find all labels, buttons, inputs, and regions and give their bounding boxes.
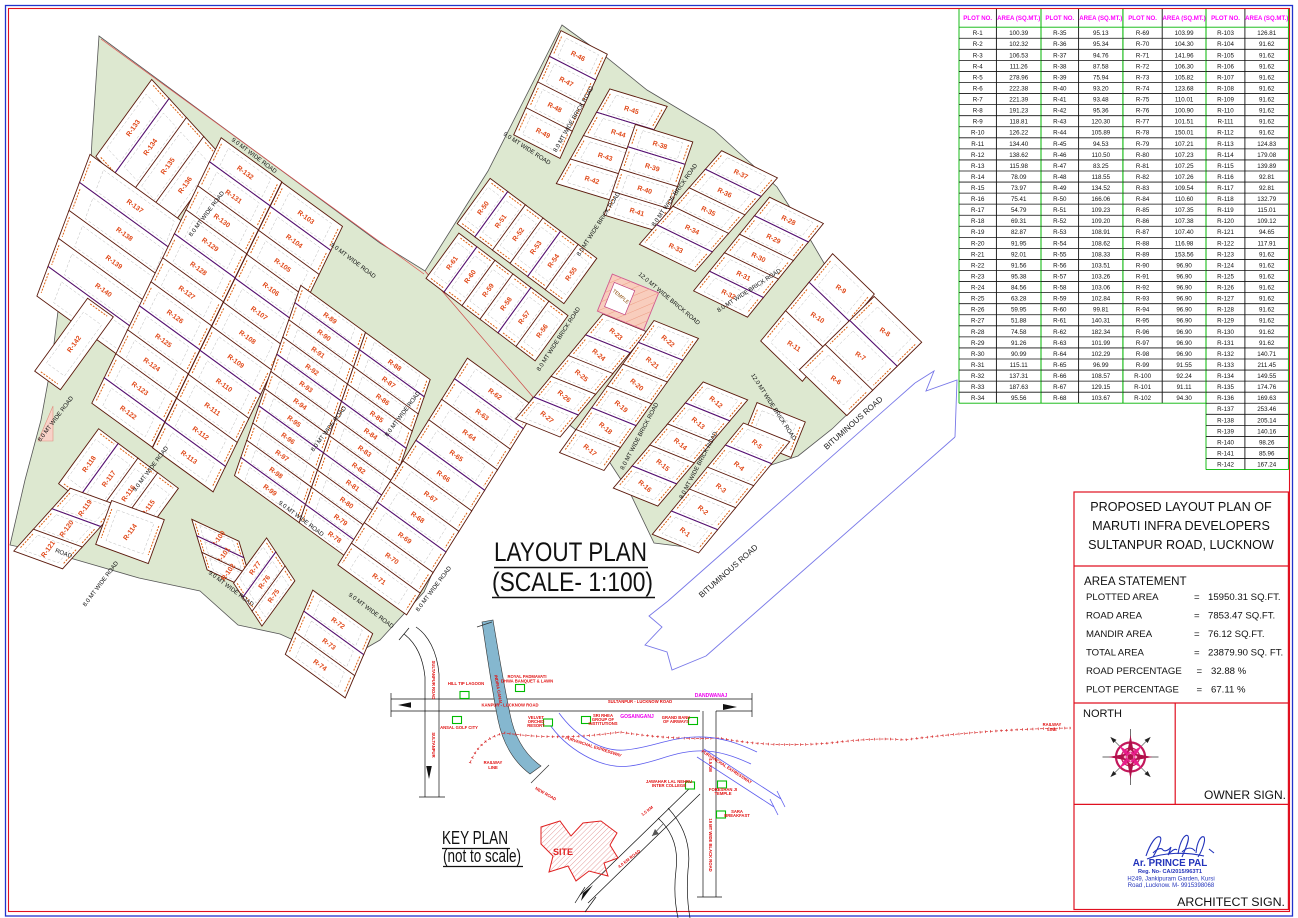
svg-text:103.26: 103.26 [1091,273,1110,280]
svg-text:R-85: R-85 [1136,207,1150,214]
svg-text:91.62: 91.62 [1259,329,1275,336]
svg-text:R-125: R-125 [1217,273,1234,280]
svg-text:82.87: 82.87 [1011,229,1027,236]
svg-text:R-134: R-134 [1217,373,1234,380]
svg-text:=: = [1197,666,1203,677]
svg-text:96.90: 96.90 [1176,273,1192,280]
svg-text:=: = [1197,685,1203,696]
svg-text:87.58: 87.58 [1093,63,1109,70]
svg-text:166.06: 166.06 [1091,196,1110,203]
svg-text:98.26: 98.26 [1259,439,1275,446]
svg-text:R-102: R-102 [1134,395,1151,402]
svg-text:7853.47 SQ.FT.: 7853.47 SQ.FT. [1208,611,1275,622]
svg-text:107.38: 107.38 [1175,218,1194,225]
svg-text:DANDWANAJ: DANDWANAJ [695,693,728,699]
svg-text:140.31: 140.31 [1091,318,1110,325]
svg-text:PLOT NO.: PLOT NO. [1045,15,1074,22]
svg-text:111.26: 111.26 [1010,63,1029,70]
svg-text:H249, Jankipuram Garden, Kursi: H249, Jankipuram Garden, Kursi [1127,876,1214,882]
svg-text:R-113: R-113 [1217,141,1234,148]
svg-text:R-15: R-15 [971,185,985,192]
svg-text:15950.31 SQ.FT.: 15950.31 SQ.FT. [1208,592,1281,603]
svg-text:R-39: R-39 [1053,74,1067,81]
svg-text:OWNER SIGN.: OWNER SIGN. [1204,788,1286,802]
svg-text:R-116: R-116 [1217,174,1234,181]
svg-text:R-35: R-35 [1053,30,1067,37]
svg-text:BREAKFAST: BREAKFAST [724,813,750,818]
svg-text:R-99: R-99 [1136,362,1150,369]
svg-text:91.62: 91.62 [1259,307,1275,314]
svg-text:R-98: R-98 [1136,351,1150,358]
svg-text:95.34: 95.34 [1093,41,1109,48]
svg-text:96.90: 96.90 [1176,318,1192,325]
svg-text:R-19: R-19 [971,229,985,236]
svg-text:R-122: R-122 [1217,240,1234,247]
svg-text:R-12: R-12 [971,152,985,159]
svg-text:92.81: 92.81 [1259,174,1275,181]
svg-text:278.96: 278.96 [1009,74,1028,81]
svg-text:110.60: 110.60 [1175,196,1194,203]
svg-text:TEMPLE: TEMPLE [715,791,732,796]
svg-text:R-140: R-140 [1217,439,1234,446]
svg-text:221.39: 221.39 [1009,97,1028,104]
svg-text:R-120: R-120 [1217,218,1234,225]
svg-text:78.09: 78.09 [1011,174,1027,181]
svg-text:R-108: R-108 [1217,85,1234,92]
svg-text:91.62: 91.62 [1259,262,1275,269]
svg-text:99.81: 99.81 [1093,307,1109,314]
svg-text:R-72: R-72 [1136,63,1150,70]
svg-text:R-54: R-54 [1053,240,1067,247]
svg-text:R-14: R-14 [971,174,985,181]
svg-text:SULTANPUR ROAD: SULTANPUR ROAD [431,661,436,700]
svg-text:132.79: 132.79 [1257,196,1276,203]
svg-text:PROPOSED LAYOUT PLAN OF: PROPOSED LAYOUT PLAN OF [1090,500,1272,514]
svg-text:R-100: R-100 [1134,373,1151,380]
svg-text:R-96: R-96 [1136,329,1150,336]
svg-text:253.46: 253.46 [1257,406,1276,413]
svg-text:R-42: R-42 [1053,108,1067,115]
svg-text:R-105: R-105 [1217,52,1234,59]
svg-text:32.88 %: 32.88 % [1211,666,1247,677]
svg-text:107.23: 107.23 [1175,152,1194,159]
svg-text:109.54: 109.54 [1175,185,1194,192]
svg-text:ROAD AREA: ROAD AREA [1086,611,1143,622]
svg-text:101.99: 101.99 [1091,340,1110,347]
svg-text:179.08: 179.08 [1257,152,1276,159]
svg-text:R-56: R-56 [1053,262,1067,269]
svg-text:141.96: 141.96 [1175,52,1194,59]
svg-text:(SCALE- 1:100): (SCALE- 1:100) [492,567,653,597]
svg-text:=: = [1194,629,1200,640]
svg-text:R-93: R-93 [1136,296,1150,303]
svg-text:109.20: 109.20 [1091,218,1110,225]
svg-text:R-65: R-65 [1053,362,1067,369]
svg-text:R-127: R-127 [1217,296,1234,303]
svg-text:R-137: R-137 [1217,406,1234,413]
svg-text:104.30: 104.30 [1175,41,1194,48]
svg-text:91.62: 91.62 [1259,273,1275,280]
svg-text:R-70: R-70 [1136,41,1150,48]
svg-text:91.62: 91.62 [1259,340,1275,347]
svg-text:91.62: 91.62 [1259,108,1275,115]
svg-text:R-16: R-16 [971,196,985,203]
svg-text:211.45: 211.45 [1257,362,1276,369]
svg-text:153.56: 153.56 [1175,251,1194,258]
svg-text:R-45: R-45 [1053,141,1067,148]
svg-text:149.55: 149.55 [1257,373,1276,380]
svg-text:R-78: R-78 [1136,130,1150,137]
svg-text:R-107: R-107 [1217,74,1234,81]
svg-text:R-33: R-33 [971,384,985,391]
svg-text:69.31: 69.31 [1011,218,1027,225]
svg-text:103.51: 103.51 [1091,262,1110,269]
svg-text:R-13: R-13 [971,163,985,170]
svg-text:115.98: 115.98 [1009,163,1028,170]
svg-text:139.89: 139.89 [1257,163,1276,170]
svg-text:R-74: R-74 [1136,85,1150,92]
svg-text:116.98: 116.98 [1175,240,1194,247]
svg-text:SITE: SITE [553,847,573,857]
svg-text:R-38: R-38 [1053,63,1067,70]
svg-text:R-79: R-79 [1136,141,1150,148]
svg-text:54.79: 54.79 [1011,207,1027,214]
svg-text:INTER COLLEGE: INTER COLLEGE [652,783,686,788]
svg-text:MANDIR AREA: MANDIR AREA [1086,629,1153,640]
svg-text:R-17: R-17 [971,207,985,214]
svg-text:R-128: R-128 [1217,307,1234,314]
svg-text:174.76: 174.76 [1257,384,1276,391]
svg-text:MARUTI INFRA DEVELOPERS: MARUTI INFRA DEVELOPERS [1092,519,1270,533]
svg-text:137.31: 137.31 [1009,373,1028,380]
svg-text:R-2: R-2 [973,41,984,48]
svg-text:R-22: R-22 [971,262,985,269]
svg-text:HILL TIP LAGOON: HILL TIP LAGOON [448,681,484,686]
svg-text:103.06: 103.06 [1091,285,1110,292]
svg-text:R-7: R-7 [973,97,984,104]
svg-text:91.62: 91.62 [1259,130,1275,137]
svg-text:85.96: 85.96 [1259,450,1275,457]
svg-text:R-6: R-6 [973,85,984,92]
svg-text:4.5 KM: 4.5 KM [708,758,713,772]
svg-text:R-59: R-59 [1053,296,1067,303]
svg-text:RESORT: RESORT [527,723,545,728]
svg-text:R-46: R-46 [1053,152,1067,159]
svg-text:91.11: 91.11 [1177,384,1193,391]
svg-text:AREA (SQ.MT.): AREA (SQ.MT.) [1245,15,1288,22]
svg-text:138.62: 138.62 [1009,152,1028,159]
svg-text:222.38: 222.38 [1009,85,1028,92]
svg-text:91.62: 91.62 [1259,74,1275,81]
svg-text:109.12: 109.12 [1257,218,1276,225]
svg-text:191.23: 191.23 [1009,108,1028,115]
svg-text:102.84: 102.84 [1091,296,1110,303]
svg-text:R-31: R-31 [971,362,985,369]
svg-text:110.01: 110.01 [1175,97,1194,104]
svg-text:R-9: R-9 [973,119,984,126]
svg-text:R-91: R-91 [1136,273,1150,280]
svg-text:R-27: R-27 [971,318,985,325]
svg-text:R-88: R-88 [1136,240,1150,247]
svg-text:103.99: 103.99 [1175,30,1194,37]
svg-text:107.40: 107.40 [1175,229,1194,236]
svg-text:R-5: R-5 [973,74,984,81]
svg-text:AREA (SQ.MT.): AREA (SQ.MT.) [1163,15,1206,22]
svg-text:R-18: R-18 [971,218,985,225]
svg-text:91.62: 91.62 [1259,251,1275,258]
svg-text:91.62: 91.62 [1259,285,1275,292]
svg-text:92.01: 92.01 [1011,251,1027,258]
svg-text:R-63: R-63 [1053,340,1067,347]
svg-text:R-84: R-84 [1136,196,1150,203]
svg-text:PLOT PERCENTAGE: PLOT PERCENTAGE [1086,685,1179,696]
svg-text:R-34: R-34 [971,395,985,402]
svg-text:R-51: R-51 [1053,207,1067,214]
svg-text:R-11: R-11 [971,141,985,148]
svg-text:R-3: R-3 [973,52,984,59]
svg-text:103.67: 103.67 [1091,395,1110,402]
svg-text:R-130: R-130 [1217,329,1234,336]
svg-text:SULTANPUR: SULTANPUR [431,732,436,757]
svg-text:R-87: R-87 [1136,229,1150,236]
svg-text:R-86: R-86 [1136,218,1150,225]
svg-text:R-1: R-1 [973,30,984,37]
svg-text:R-106: R-106 [1217,63,1234,70]
svg-text:NORTH: NORTH [1083,708,1122,720]
svg-text:R-30: R-30 [971,351,985,358]
svg-text:R-83: R-83 [1136,185,1150,192]
svg-text:R-32: R-32 [971,373,985,380]
svg-text:R-119: R-119 [1217,207,1234,214]
svg-text:R-60: R-60 [1053,307,1067,314]
svg-text:91.62: 91.62 [1259,318,1275,325]
svg-text:96.90: 96.90 [1176,329,1192,336]
svg-text:140.16: 140.16 [1257,428,1276,435]
svg-text:118.81: 118.81 [1009,119,1028,126]
svg-text:=: = [1194,648,1200,659]
svg-text:94.76: 94.76 [1093,52,1109,59]
svg-text:R-73: R-73 [1136,74,1150,81]
svg-text:GOSAINGANJ: GOSAINGANJ [620,714,654,720]
svg-text:R-76: R-76 [1136,108,1150,115]
svg-text:ROAD PERCENTAGE: ROAD PERCENTAGE [1086,666,1182,677]
svg-text:107.25: 107.25 [1175,163,1194,170]
svg-text:91.56: 91.56 [1011,262,1027,269]
svg-text:Ar. PRINCE PAL: Ar. PRINCE PAL [1133,858,1207,869]
svg-text:LINE: LINE [488,765,498,770]
svg-text:124.83: 124.83 [1257,141,1276,148]
svg-text:129.15: 129.15 [1091,384,1110,391]
svg-text:107.26: 107.26 [1175,174,1194,181]
svg-text:59.95: 59.95 [1011,307,1027,314]
svg-text:96.90: 96.90 [1176,351,1192,358]
svg-text:R-58: R-58 [1053,285,1067,292]
svg-text:106.30: 106.30 [1175,63,1194,70]
svg-text:R-40: R-40 [1053,85,1067,92]
svg-text:R-111: R-111 [1218,119,1234,126]
svg-text:106.53: 106.53 [1009,52,1028,59]
svg-text:R-53: R-53 [1053,229,1067,236]
svg-text:AREA (SQ.MT.): AREA (SQ.MT.) [1079,15,1122,22]
svg-text:R-29: R-29 [971,340,985,347]
svg-text:102.32: 102.32 [1009,41,1028,48]
svg-text:R-68: R-68 [1053,395,1067,402]
svg-text:R-57: R-57 [1053,273,1067,280]
svg-text:169.63: 169.63 [1257,395,1276,402]
svg-text:R-131: R-131 [1217,340,1234,347]
svg-text:INSTITUTIONS: INSTITUTIONS [588,721,617,726]
svg-text:108.33: 108.33 [1091,251,1110,258]
svg-text:92.24: 92.24 [1176,373,1192,380]
svg-text:91.95: 91.95 [1011,240,1027,247]
svg-text:91.62: 91.62 [1259,119,1275,126]
svg-text:96.90: 96.90 [1176,296,1192,303]
svg-text:R-80: R-80 [1136,152,1150,159]
svg-text:R-20: R-20 [971,240,985,247]
svg-text:DHWA BANQUET & LAWN: DHWA BANQUET & LAWN [501,679,553,684]
svg-text:R-69: R-69 [1136,30,1150,37]
svg-text:105.82: 105.82 [1175,74,1194,81]
svg-text:R-132: R-132 [1217,351,1234,358]
svg-text:R-66: R-66 [1053,373,1067,380]
svg-text:91.62: 91.62 [1259,52,1275,59]
svg-text:R-138: R-138 [1217,417,1234,424]
svg-text:ARCHITECT SIGN.: ARCHITECT SIGN. [1177,895,1285,909]
svg-text:83.25: 83.25 [1093,163,1109,170]
svg-text:205.14: 205.14 [1257,417,1276,424]
svg-text:R-92: R-92 [1136,285,1150,292]
svg-text:74.58: 74.58 [1011,329,1027,336]
svg-text:R-95: R-95 [1136,318,1150,325]
svg-text:75.41: 75.41 [1011,196,1027,203]
svg-text:100.39: 100.39 [1009,30,1028,37]
svg-text:R-23: R-23 [971,273,985,280]
svg-text:R-89: R-89 [1136,251,1150,258]
svg-text:91.55: 91.55 [1176,362,1192,369]
svg-text:101.51: 101.51 [1175,119,1194,126]
svg-text:LINE: LINE [1047,727,1057,732]
svg-text:76.12 SQ.FT.: 76.12 SQ.FT. [1208,629,1265,640]
svg-text:108.57: 108.57 [1091,373,1110,380]
svg-text:R-118: R-118 [1217,196,1234,203]
svg-text:R-90: R-90 [1136,262,1150,269]
svg-text:R-44: R-44 [1053,130,1067,137]
svg-text:167.24: 167.24 [1257,462,1276,469]
svg-text:PLOT NO.: PLOT NO. [963,15,992,22]
svg-text:SULTANPUR - LUCKNOW ROAD: SULTANPUR - LUCKNOW ROAD [608,699,672,704]
svg-text:R-114: R-114 [1217,152,1234,159]
svg-text:R-77: R-77 [1136,119,1150,126]
svg-text:23879.90 SQ. FT.: 23879.90 SQ. FT. [1208,648,1283,659]
svg-text:R-126: R-126 [1217,285,1234,292]
svg-text:94.65: 94.65 [1259,229,1275,236]
svg-text:R-71: R-71 [1136,52,1150,59]
svg-text:96.90: 96.90 [1176,307,1192,314]
svg-text:105.89: 105.89 [1091,130,1110,137]
svg-text:91.62: 91.62 [1259,296,1275,303]
svg-text:R-133: R-133 [1217,362,1234,369]
svg-text:108.62: 108.62 [1091,240,1110,247]
svg-text:R-64: R-64 [1053,351,1067,358]
svg-text:R-123: R-123 [1217,251,1234,258]
svg-text:Reg. No- CA/2015/963T1: Reg. No- CA/2015/963T1 [1138,869,1202,875]
svg-text:91.62: 91.62 [1259,41,1275,48]
svg-text:R-129: R-129 [1217,318,1234,325]
svg-text:ANSAL GOLF CITY: ANSAL GOLF CITY [440,725,478,730]
svg-text:102.29: 102.29 [1091,351,1110,358]
svg-text:73.97: 73.97 [1011,185,1027,192]
svg-text:R-43: R-43 [1053,119,1067,126]
svg-text:R-61: R-61 [1053,318,1067,325]
svg-text:R-47: R-47 [1053,163,1067,170]
svg-text:134.40: 134.40 [1009,141,1028,148]
svg-text:126.22: 126.22 [1009,130,1028,137]
svg-text:R-52: R-52 [1053,218,1067,225]
svg-text:R-4: R-4 [973,63,984,70]
svg-text:75.94: 75.94 [1093,74,1109,81]
svg-text:R-135: R-135 [1217,384,1234,391]
svg-text:R-26: R-26 [971,307,985,314]
svg-text:R-81: R-81 [1136,163,1150,170]
svg-text:90.99: 90.99 [1011,351,1027,358]
svg-text:140.71: 140.71 [1257,351,1276,358]
svg-text:95.36: 95.36 [1093,108,1109,115]
svg-text:PLOT NO.: PLOT NO. [1211,15,1240,22]
svg-text:96.99: 96.99 [1093,362,1109,369]
svg-text:109.23: 109.23 [1091,207,1110,214]
svg-text:R-10: R-10 [971,130,985,137]
svg-text:R-28: R-28 [971,329,985,336]
svg-text:182.34: 182.34 [1091,329,1110,336]
svg-text:93.48: 93.48 [1093,97,1109,104]
svg-text:PLOT NO.: PLOT NO. [1128,15,1157,22]
svg-text:96.90: 96.90 [1176,285,1192,292]
svg-text:93.20: 93.20 [1093,85,1109,92]
svg-text:R-117: R-117 [1217,185,1234,192]
svg-text:95.38: 95.38 [1011,273,1027,280]
svg-text:Road ,Lucknow. M- 9915398068: Road ,Lucknow. M- 9915398068 [1128,883,1215,889]
svg-text:R-55: R-55 [1053,251,1067,258]
svg-text:AREA STATEMENT: AREA STATEMENT [1084,575,1187,588]
svg-text:67.11 %: 67.11 % [1211,685,1246,696]
svg-text:R-124: R-124 [1217,262,1234,269]
svg-text:51.88: 51.88 [1011,318,1027,325]
svg-text:95.56: 95.56 [1011,395,1027,402]
svg-text:SULTANPUR ROAD, LUCKNOW: SULTANPUR ROAD, LUCKNOW [1088,538,1274,552]
svg-text:KANPUR - LUCKNOW ROAD: KANPUR - LUCKNOW ROAD [482,703,539,708]
svg-text:R-36: R-36 [1053,41,1067,48]
svg-text:LAYOUT PLAN: LAYOUT PLAN [494,537,647,567]
svg-text:(not to scale): (not to scale) [443,846,521,866]
svg-text:R-103: R-103 [1217,30,1234,37]
svg-text:115.11: 115.11 [1010,362,1029,369]
svg-text:R-67: R-67 [1053,384,1067,391]
svg-text:R-97: R-97 [1136,340,1150,347]
svg-text:115.01: 115.01 [1257,207,1276,214]
svg-text:R-94: R-94 [1136,307,1150,314]
svg-text:91.62: 91.62 [1259,97,1275,104]
svg-text:R-75: R-75 [1136,97,1150,104]
svg-text:R-136: R-136 [1217,395,1234,402]
svg-text:=: = [1194,611,1200,622]
svg-text:19 MT WIDE BLACK ROAD: 19 MT WIDE BLACK ROAD [708,818,713,871]
svg-text:117.91: 117.91 [1257,240,1276,247]
svg-text:OF AIRWAYS: OF AIRWAYS [663,719,689,724]
svg-text:AREA (SQ.MT.): AREA (SQ.MT.) [997,15,1040,22]
svg-text:96.90: 96.90 [1176,340,1192,347]
svg-text:150.01: 150.01 [1175,130,1194,137]
svg-text:R-37: R-37 [1053,52,1067,59]
